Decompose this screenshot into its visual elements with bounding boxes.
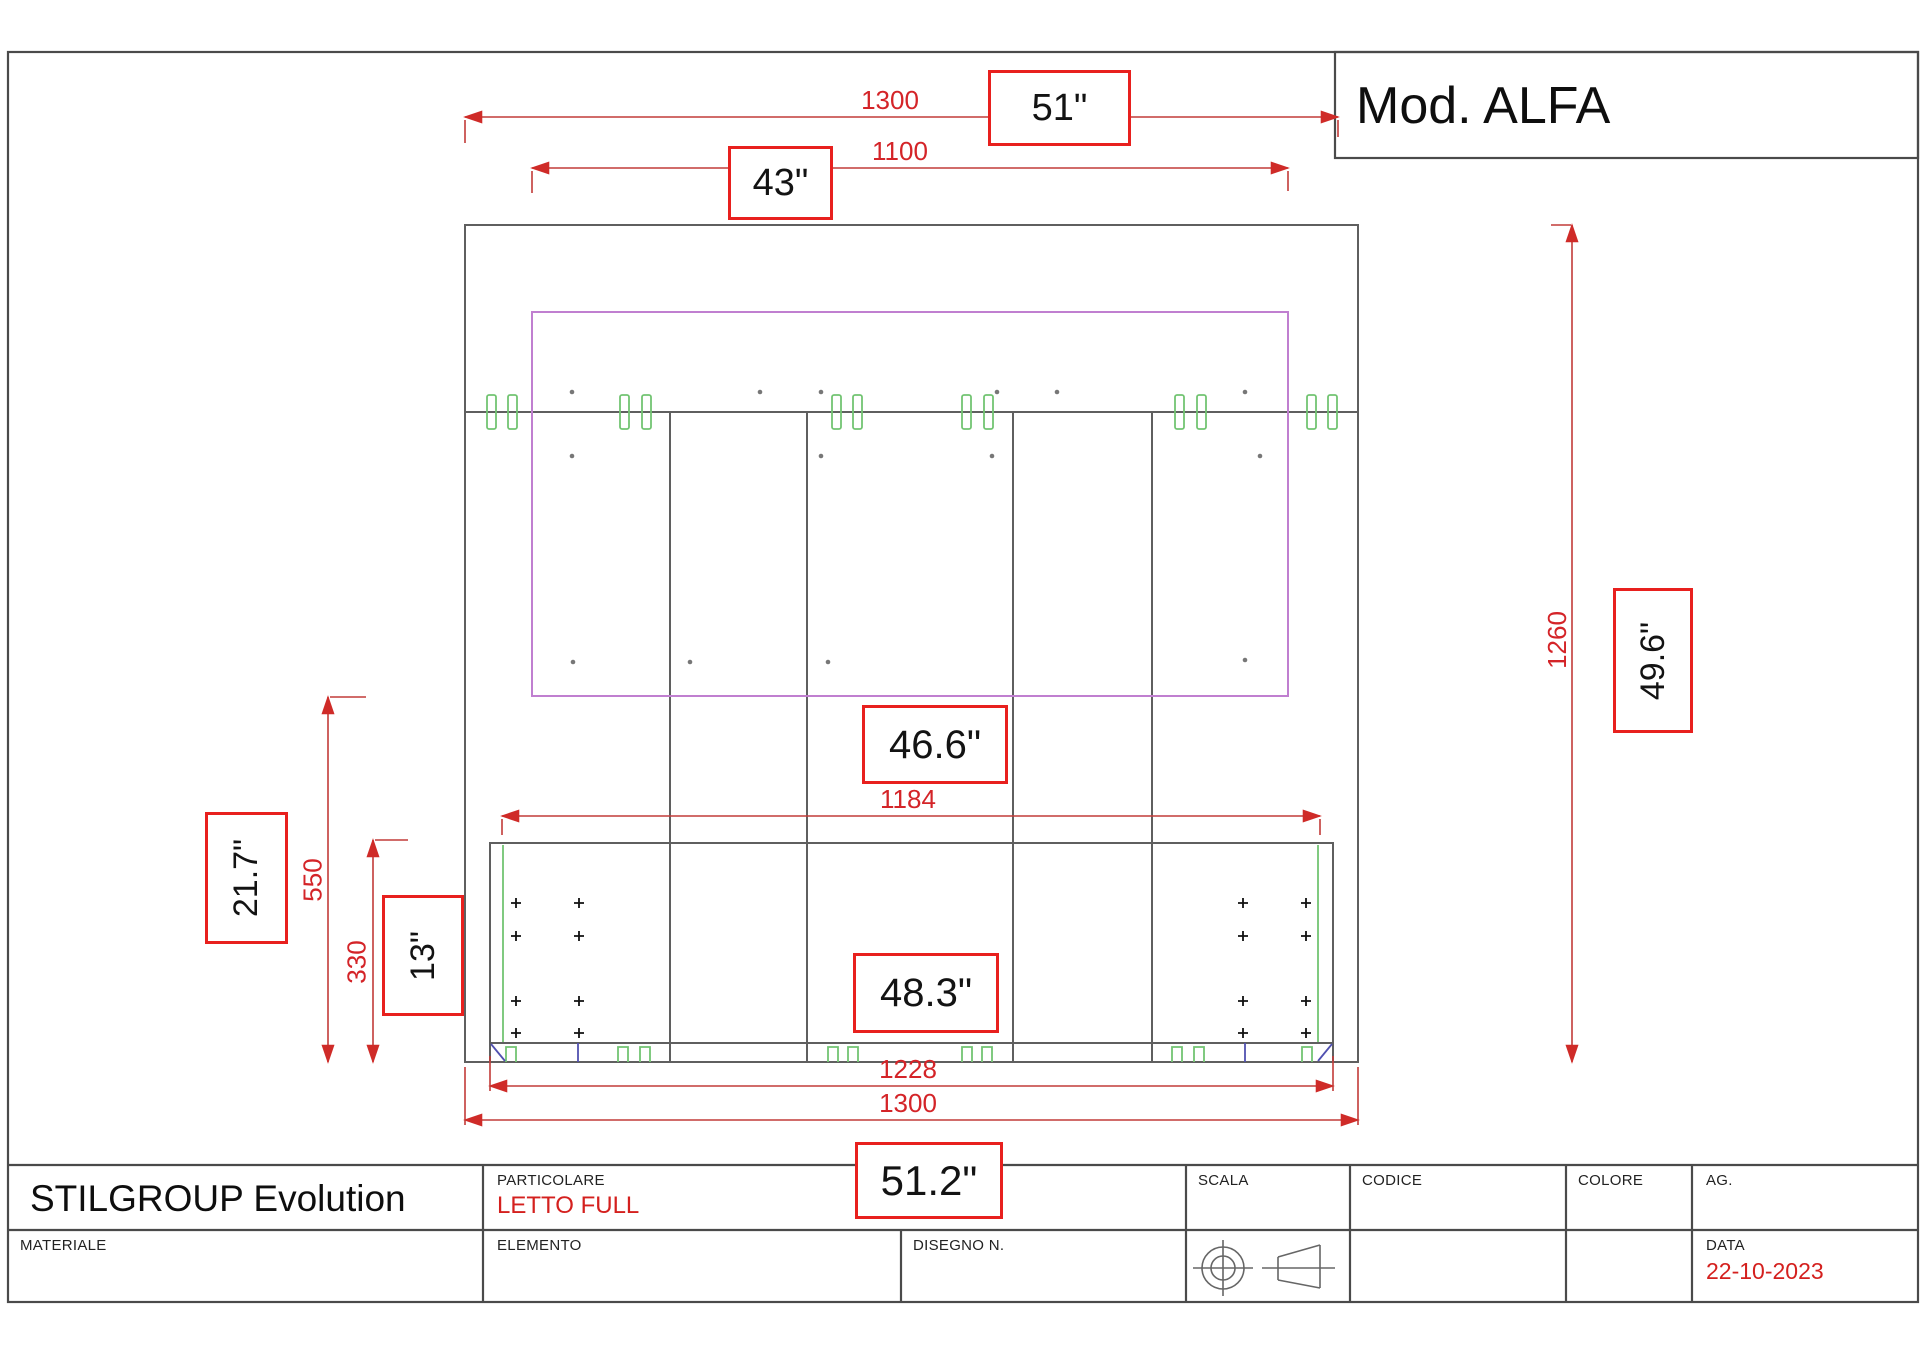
first-angle-projection-icon bbox=[1193, 1240, 1335, 1296]
annotation-base-width-in: 48.3" bbox=[853, 953, 999, 1033]
bed-outline bbox=[465, 225, 1358, 1062]
technical-drawing-sheet: Mod. ALFA 1300 1100 1184 1228 1300 550 3… bbox=[0, 0, 1920, 1361]
data-value: 22-10-2023 bbox=[1706, 1258, 1824, 1285]
annotation-top-width-in: 51" bbox=[988, 70, 1131, 146]
scala-label: SCALA bbox=[1198, 1172, 1249, 1189]
particolare-label: PARTICOLARE bbox=[497, 1172, 605, 1189]
annotation-leg-height-in: 13" bbox=[382, 895, 464, 1016]
materiale-label: MATERIALE bbox=[20, 1237, 107, 1254]
data-label: DATA bbox=[1706, 1237, 1745, 1254]
particolare-value: LETTO FULL bbox=[497, 1192, 639, 1220]
dim-footboard-height-mm: 550 bbox=[298, 820, 328, 940]
dim-leg-height-mm: 330 bbox=[342, 902, 372, 1022]
dim-height-mm: 1260 bbox=[1542, 580, 1572, 700]
dim-headboard-width-mm: 1100 bbox=[840, 138, 960, 164]
model-title: Mod. ALFA bbox=[1356, 76, 1610, 136]
annotation-overall-width-in: 51.2" bbox=[855, 1142, 1003, 1219]
annotation-slat-width-in: 46.6" bbox=[862, 705, 1008, 784]
headboard-panel bbox=[532, 312, 1288, 696]
colore-label: COLORE bbox=[1578, 1172, 1643, 1189]
disegno-label: DISEGNO N. bbox=[913, 1237, 1004, 1254]
annotation-headboard-width-in: 43" bbox=[728, 146, 833, 220]
dim-slat-width-mm: 1184 bbox=[848, 786, 968, 812]
dim-top-width-mm: 1300 bbox=[830, 87, 950, 113]
elemento-label: ELEMENTO bbox=[497, 1237, 582, 1254]
annotation-footboard-height-in: 21.7" bbox=[205, 812, 288, 944]
dim-overall-width-mm: 1300 bbox=[848, 1090, 968, 1116]
dim-base-width-mm: 1228 bbox=[848, 1056, 968, 1082]
drill-dots bbox=[570, 390, 1263, 665]
annotation-height-in: 49.6" bbox=[1613, 588, 1693, 733]
ag-label: AG. bbox=[1706, 1172, 1733, 1189]
company-name: STILGROUP Evolution bbox=[30, 1178, 406, 1220]
codice-label: CODICE bbox=[1362, 1172, 1422, 1189]
